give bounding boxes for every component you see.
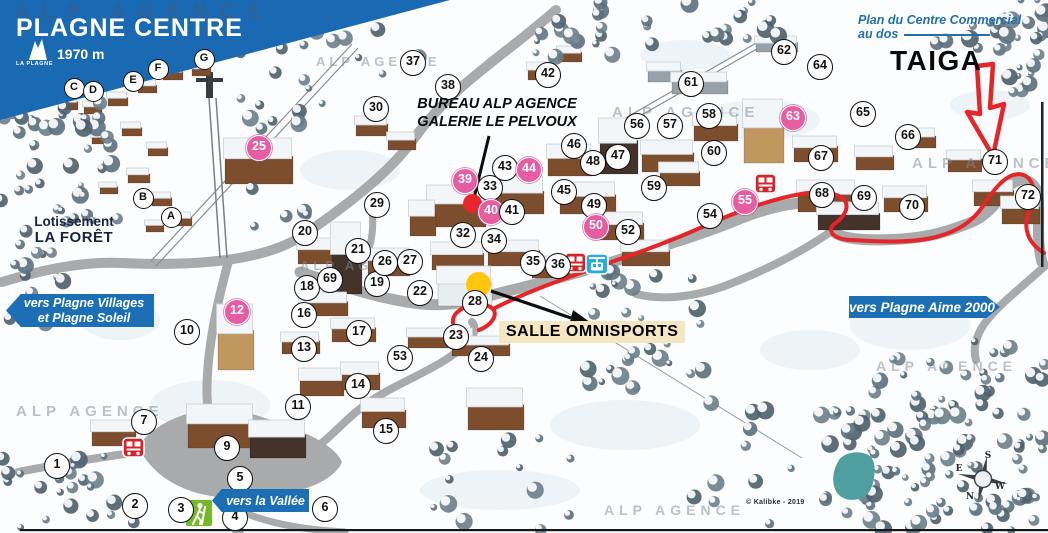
banner-aime-line1: vers Plagne Aime 2000 xyxy=(849,300,988,315)
marker-letter-E: E xyxy=(123,71,144,92)
bureau-label: BUREAU ALP AGENCE GALERIE LE PELVOUX xyxy=(413,95,581,131)
marker-69-2: 69 xyxy=(317,267,343,293)
logo-label: LA PLAGNE xyxy=(16,61,53,67)
banner-plagne-aime-2000: vers Plagne Aime 2000 xyxy=(849,296,1000,318)
marker-29: 29 xyxy=(364,192,390,218)
bus-icon xyxy=(754,173,777,199)
compass-east: E xyxy=(956,464,963,474)
marker-35: 35 xyxy=(520,250,546,276)
altitude-label: 1970 m xyxy=(57,46,104,62)
marker-26: 26 xyxy=(372,250,398,276)
marker-letter-B: B xyxy=(133,188,154,209)
plan-note-line1: Plan du Centre Commercial xyxy=(858,13,1021,27)
marker-48: 48 xyxy=(580,150,606,176)
marker-9: 9 xyxy=(214,435,240,461)
marker-28: 28 xyxy=(462,290,488,316)
map-credit: © Kalibke - 2019 xyxy=(746,499,805,506)
marker-22: 22 xyxy=(407,280,433,306)
marker-16: 16 xyxy=(291,302,317,328)
marker-43: 43 xyxy=(492,155,518,181)
marker-36: 36 xyxy=(545,253,571,279)
marker-71: 71 xyxy=(982,149,1008,175)
marker-68: 68 xyxy=(809,182,835,208)
marker-52: 52 xyxy=(615,219,641,245)
plan-note-rule xyxy=(904,34,990,36)
marker-letter-D: D xyxy=(83,81,104,102)
marker-63: 63 xyxy=(780,105,806,131)
marker-2: 2 xyxy=(122,493,148,519)
marker-47: 47 xyxy=(605,144,631,170)
marker-12: 12 xyxy=(224,299,250,325)
marker-7: 7 xyxy=(131,409,157,435)
marker-13: 13 xyxy=(291,336,317,362)
marker-5: 5 xyxy=(227,466,253,492)
marker-61: 61 xyxy=(678,71,704,97)
bus-icon xyxy=(122,437,145,463)
marker-3: 3 xyxy=(168,497,194,523)
marker-72: 72 xyxy=(1015,184,1041,210)
marker-67: 67 xyxy=(808,145,834,171)
marker-56: 56 xyxy=(624,113,650,139)
marker-34: 34 xyxy=(481,228,507,254)
banner-vers-la-vallee: vers la Vallée xyxy=(212,489,309,512)
marker-32: 32 xyxy=(450,222,476,248)
marker-23: 23 xyxy=(443,324,469,350)
marker-24: 24 xyxy=(468,346,494,372)
marker-30: 30 xyxy=(363,96,389,122)
marker-25: 25 xyxy=(246,135,272,161)
marker-53: 53 xyxy=(387,345,413,371)
banner-plagne-villages: vers Plagne Villages et Plagne Soleil xyxy=(6,294,154,327)
banner-villages-line1: vers Plagne Villages xyxy=(14,296,154,311)
marker-letter-G: G xyxy=(194,49,215,70)
compass-south: S xyxy=(985,451,992,461)
taiga-label: TAIGA xyxy=(890,45,983,77)
bureau-line1: BUREAU ALP AGENCE xyxy=(417,96,577,112)
lotissement-label: Lotissement LA FORÊT xyxy=(26,214,122,246)
marker-10: 10 xyxy=(174,319,200,345)
marker-21: 21 xyxy=(345,238,371,264)
marker-41: 41 xyxy=(499,199,525,225)
banner-vallee-line1: vers la Vallée xyxy=(222,494,309,508)
marker-6: 6 xyxy=(312,496,338,522)
marker-50: 50 xyxy=(583,214,609,240)
marker-70: 70 xyxy=(899,194,925,220)
marker-39: 39 xyxy=(452,168,478,194)
plan-note-line2: au dos xyxy=(858,27,898,41)
marker-20: 20 xyxy=(292,220,318,246)
resort-map: ALP AGENCEALP AGENCEALP AGENCEALP AGENCE… xyxy=(0,0,1048,533)
bureau-line2: GALERIE LE PELVOUX xyxy=(417,114,577,130)
gondola-icon xyxy=(585,253,609,280)
marker-65: 65 xyxy=(850,101,876,127)
marker-letter-C: C xyxy=(64,78,85,99)
compass-west: W xyxy=(995,482,1005,492)
marker-44: 44 xyxy=(516,157,542,183)
marker-66: 66 xyxy=(895,124,921,150)
lotissement-line2: LA FORÊT xyxy=(26,229,122,246)
marker-17: 17 xyxy=(346,320,372,346)
plan-note: Plan du Centre Commercial au dos xyxy=(858,13,1021,41)
marker-54: 54 xyxy=(697,203,723,229)
marker-45: 45 xyxy=(551,179,577,205)
marker-1: 1 xyxy=(44,453,70,479)
marker-55: 55 xyxy=(732,189,758,215)
marker-letter-A: A xyxy=(161,207,182,228)
lotissement-line1: Lotissement xyxy=(26,214,122,229)
marker-37: 37 xyxy=(400,50,426,76)
marker-60: 60 xyxy=(701,140,727,166)
banner-villages-line2: et Plagne Soleil xyxy=(14,311,154,326)
marker-11: 11 xyxy=(285,394,311,420)
marker-62: 62 xyxy=(771,39,797,65)
marker-64: 64 xyxy=(807,54,833,80)
compass-north: N xyxy=(966,492,974,502)
marker-59: 59 xyxy=(641,175,667,201)
marker-57: 57 xyxy=(657,113,683,139)
marker-14: 14 xyxy=(345,373,371,399)
marker-15: 15 xyxy=(373,418,399,444)
marker-27: 27 xyxy=(397,249,423,275)
marker-42: 42 xyxy=(535,62,561,88)
marker-69: 69 xyxy=(851,185,877,211)
salle-omnisports-label: SALLE OMNISPORTS xyxy=(499,321,685,343)
marker-letter-F: F xyxy=(148,59,169,80)
marker-58: 58 xyxy=(696,103,722,129)
